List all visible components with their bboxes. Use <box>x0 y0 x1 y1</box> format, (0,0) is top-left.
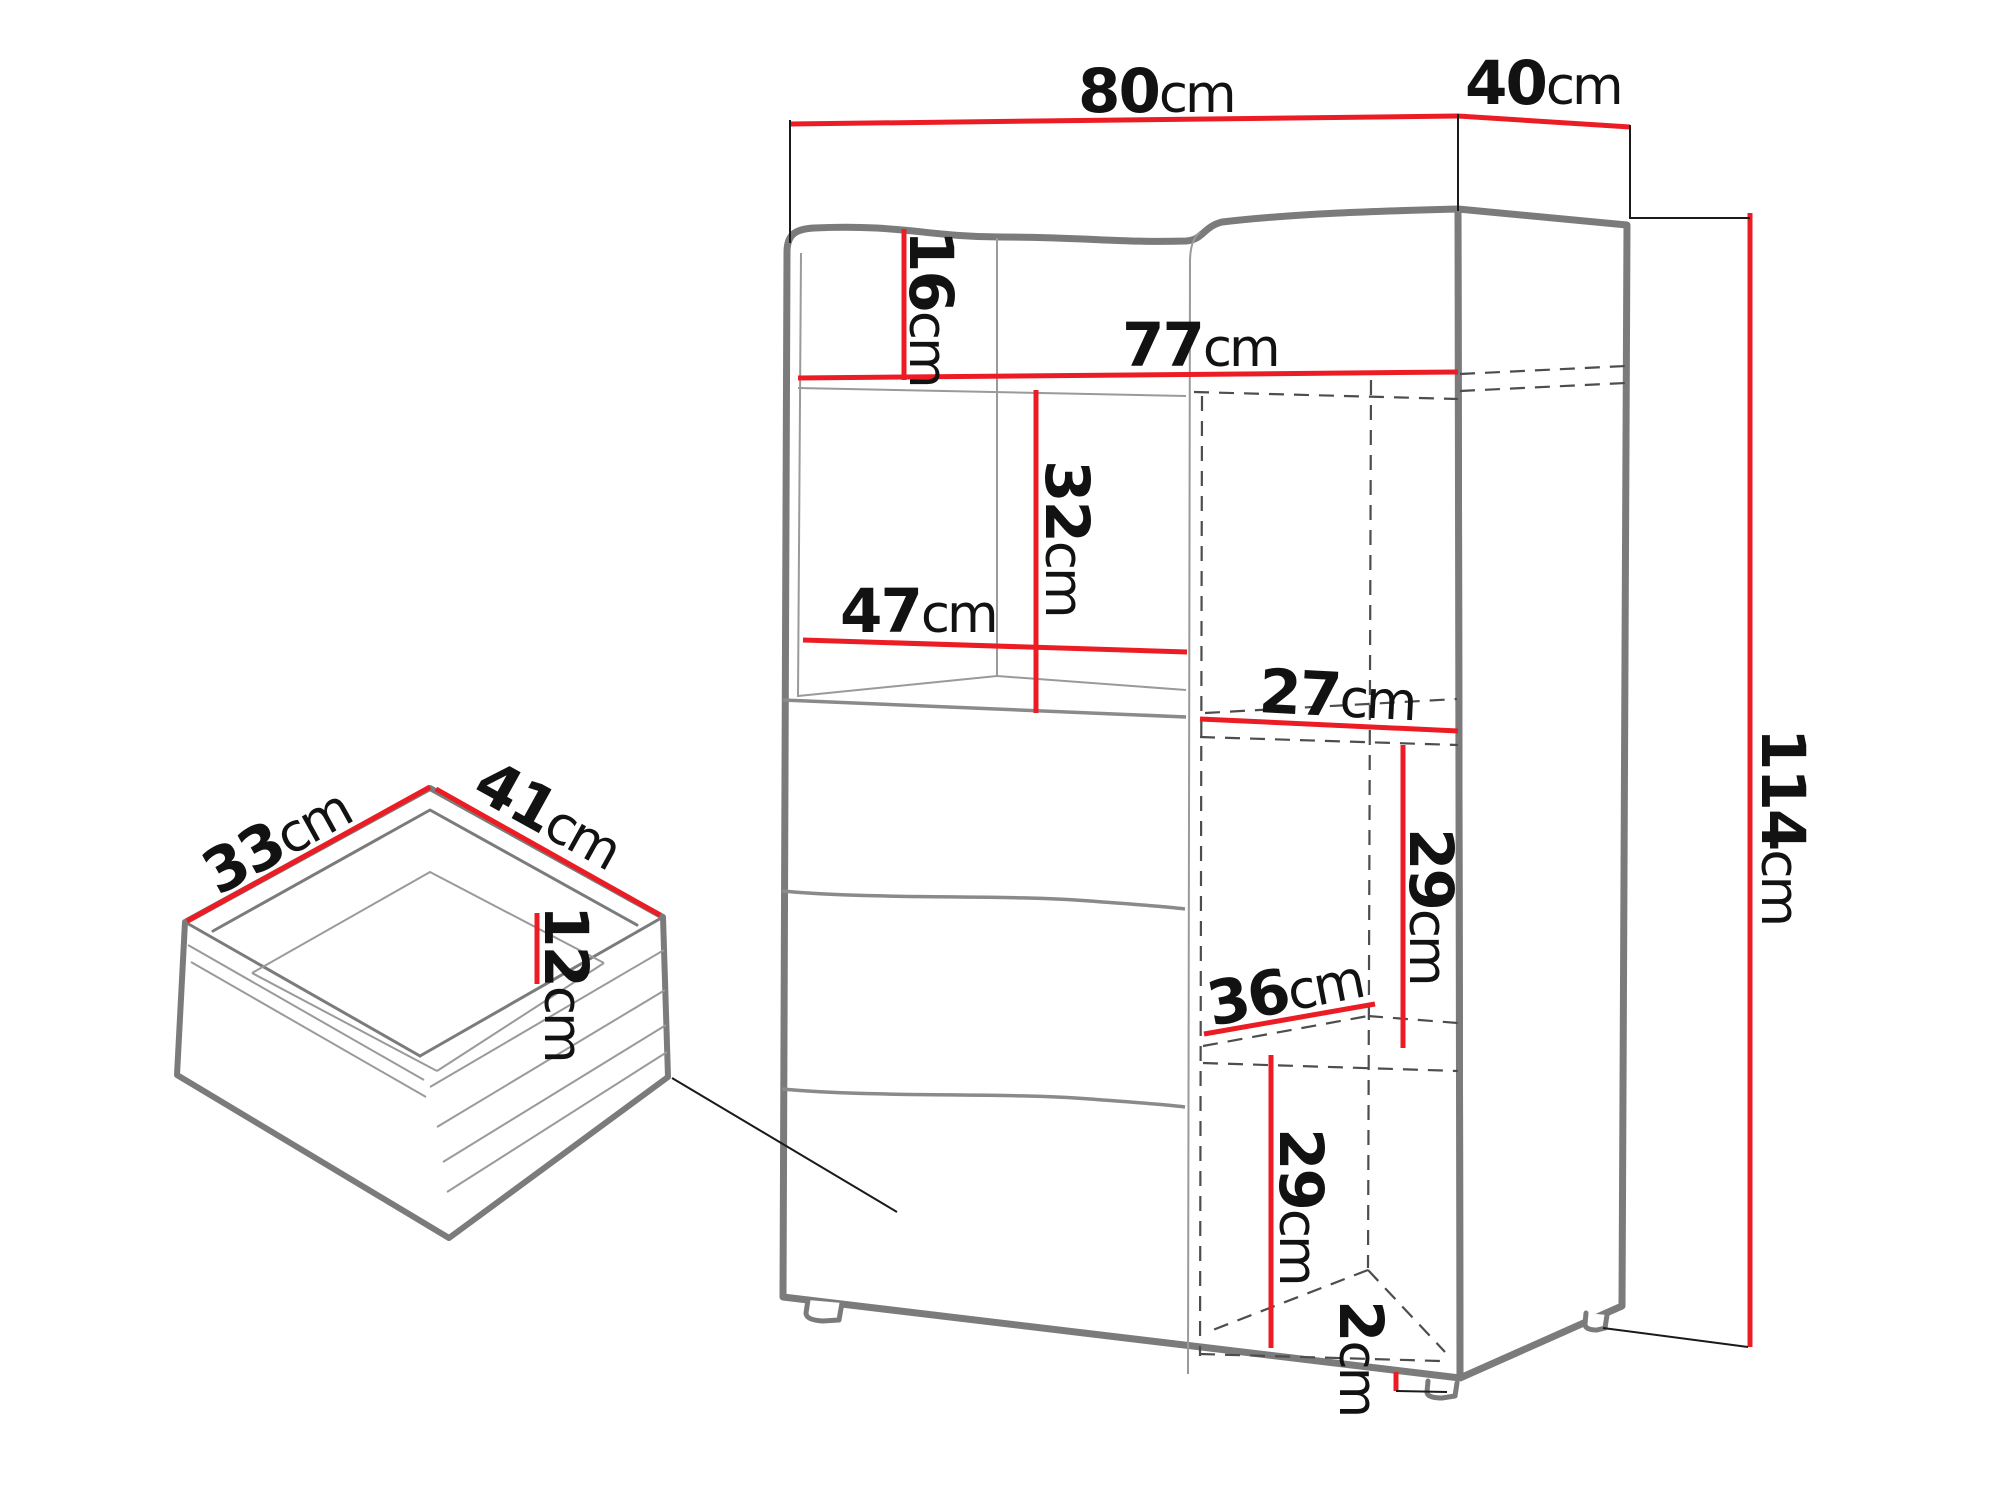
dim-label-foot-2: 2cm <box>1325 1300 1396 1415</box>
dim-label-interior-77: 77cm <box>1122 310 1278 381</box>
cabinet-view <box>782 209 1627 1398</box>
dim-label-niche-16: 16cm <box>895 230 966 386</box>
cabinet-front-face <box>783 209 1460 1378</box>
dim-label-width-80: 80cm <box>1078 56 1234 127</box>
cabinet-foot-left <box>806 1300 842 1321</box>
dim-label-drawer-12: 12cm <box>530 905 601 1061</box>
dim-label-comp-29-upper: 29cm <box>1395 828 1466 984</box>
guide-height-bottom <box>1603 1328 1748 1347</box>
dim-label-depth-40: 40cm <box>1465 48 1621 119</box>
dim-label-comp-29-lower: 29cm <box>1265 1128 1336 1284</box>
cabinet-side-face <box>1458 209 1627 1378</box>
furniture-dimension-diagram: 80cm 40cm 114cm 16cm 77cm 32cm 47cm 27cm… <box>0 0 2000 1500</box>
dim-label-niche-32: 32cm <box>1031 460 1102 616</box>
guide-back-top <box>1630 125 1750 218</box>
dim-label-niche-47: 47cm <box>840 576 996 647</box>
dim-label-height-114: 114cm <box>1747 728 1818 924</box>
cabinet-foot-right <box>1427 1381 1457 1398</box>
guide-foot-bracket <box>1396 1391 1447 1392</box>
diagram-canvas: 80cm 40cm 114cm 16cm 77cm 32cm 47cm 27cm… <box>0 0 2000 1500</box>
